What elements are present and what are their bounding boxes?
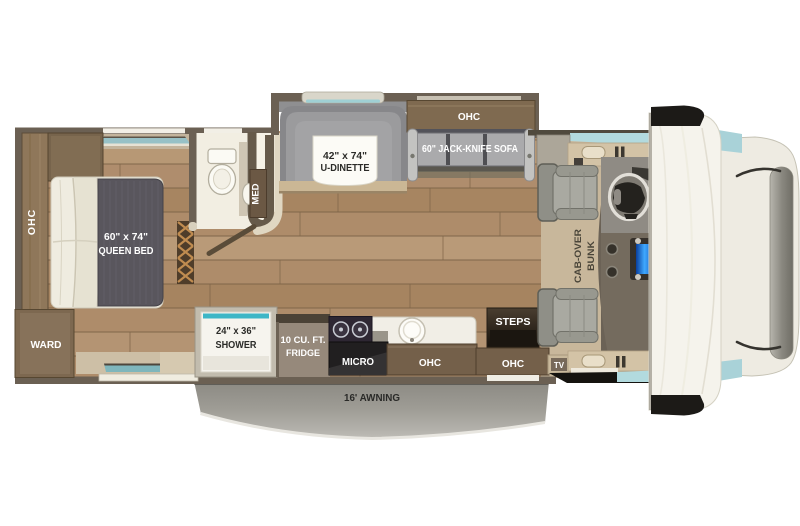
svg-text:60" x 74": 60" x 74" [104, 231, 148, 243]
svg-text:OHC: OHC [419, 358, 441, 369]
svg-text:16' AWNING: 16' AWNING [344, 392, 400, 404]
svg-text:FRIDGE: FRIDGE [286, 348, 320, 359]
svg-text:24" x 36": 24" x 36" [216, 325, 256, 337]
svg-text:OHC: OHC [26, 209, 38, 235]
svg-text:MICRO: MICRO [342, 357, 374, 368]
svg-text:10 CU. FT.: 10 CU. FT. [281, 335, 326, 346]
svg-text:42" x 74": 42" x 74" [323, 150, 367, 162]
svg-text:QUEEN BED: QUEEN BED [99, 245, 154, 257]
svg-text:WARD: WARD [31, 339, 62, 351]
svg-text:BUNK: BUNK [586, 241, 597, 271]
svg-text:U-DINETTE: U-DINETTE [321, 162, 370, 174]
svg-text:STEPS: STEPS [496, 316, 531, 328]
svg-text:CAB-OVER: CAB-OVER [573, 229, 584, 283]
svg-text:OHC: OHC [502, 359, 524, 370]
svg-text:TV: TV [554, 361, 565, 370]
svg-text:MED: MED [251, 183, 262, 204]
svg-text:OHC: OHC [458, 112, 480, 123]
svg-text:SHOWER: SHOWER [216, 339, 257, 351]
svg-text:60" JACK-KNIFE SOFA: 60" JACK-KNIFE SOFA [422, 143, 518, 155]
